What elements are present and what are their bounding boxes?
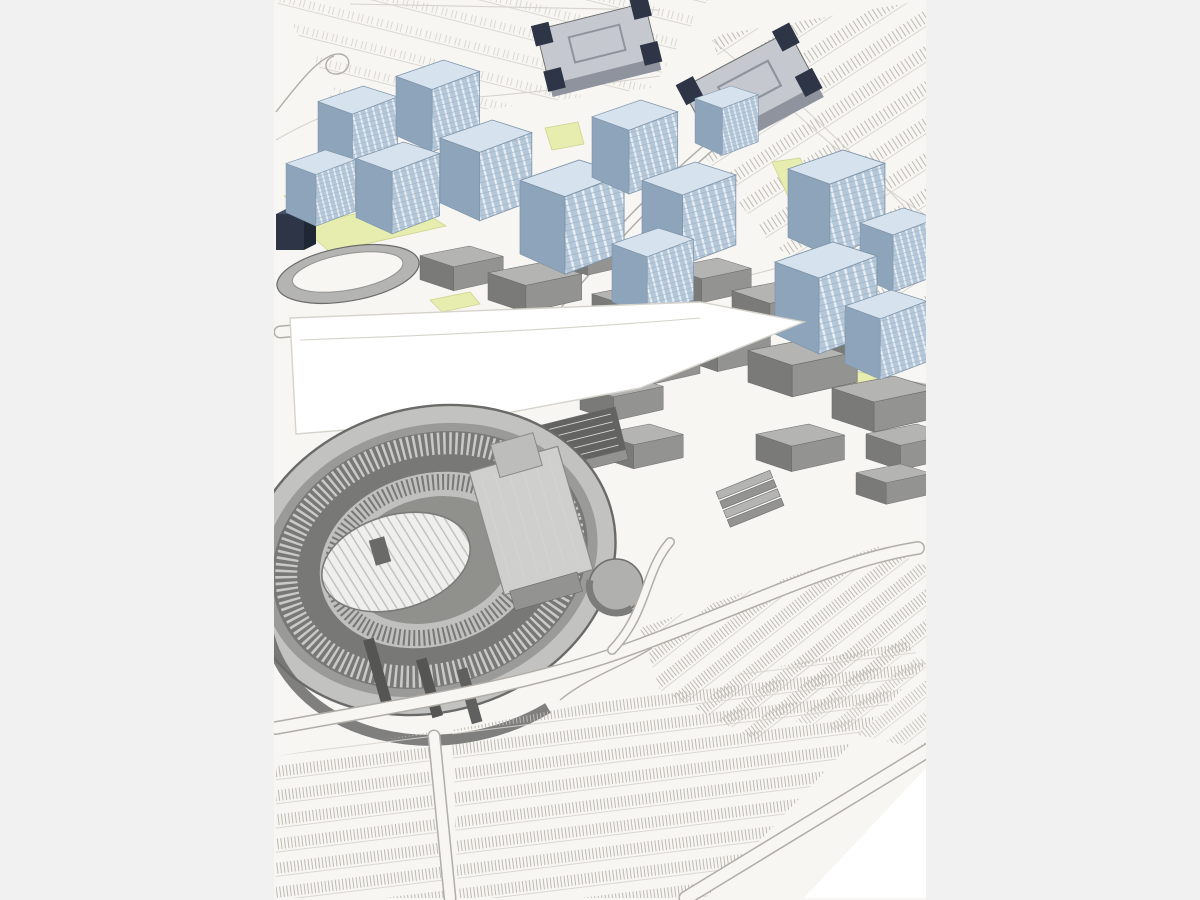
image-viewer-page	[0, 0, 1200, 900]
letterbox-right	[926, 0, 1200, 900]
rendering-canvas	[207, 0, 951, 900]
rendering-image	[0, 0, 1200, 900]
letterbox-left	[0, 0, 274, 900]
